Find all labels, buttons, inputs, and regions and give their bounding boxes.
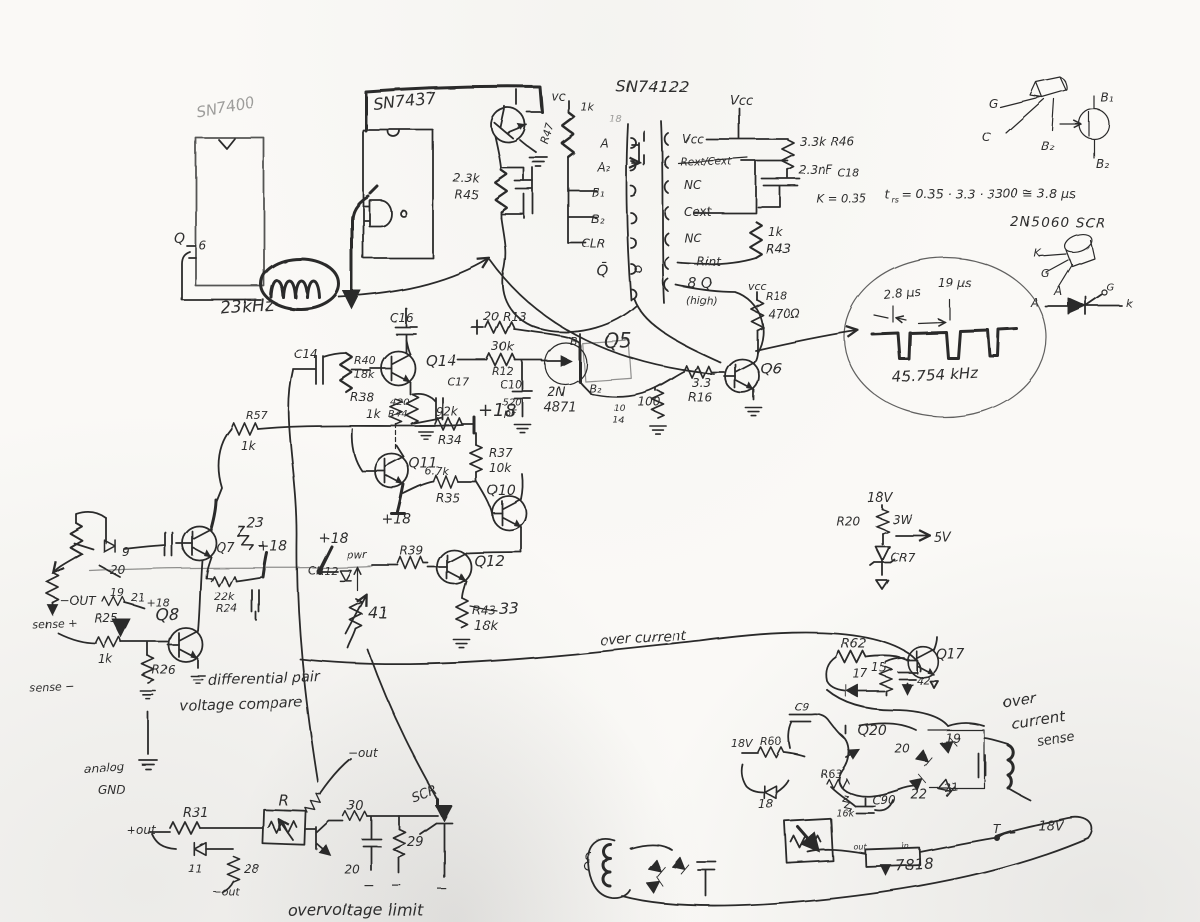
label-3w: 3W xyxy=(892,512,913,526)
label-pin-q-out: 8 Q xyxy=(688,276,712,292)
label-pin-rint: Rint xyxy=(697,255,722,269)
label-r45: R45 xyxy=(455,188,479,202)
label-c42: 42 xyxy=(916,674,930,687)
label-r46: R46 xyxy=(831,135,855,149)
label-18v-a: 18V xyxy=(731,737,754,750)
label-r24: R24 xyxy=(216,602,238,615)
label-p18-q7: +18 xyxy=(258,539,288,555)
label-pin-clr: CLR xyxy=(582,237,605,251)
label-pwr: pwr xyxy=(345,548,368,561)
label-d18: 18 xyxy=(758,797,774,811)
caption-oc-over: over xyxy=(1001,688,1037,711)
label-5v: 5V xyxy=(934,531,952,546)
label-q14: Q14 xyxy=(426,352,457,370)
label-vcc-top: Vcc xyxy=(729,93,752,108)
label-c17: C17 xyxy=(448,376,470,389)
region-5v-tap: 18V R20 3W 5V CR7 xyxy=(836,491,952,589)
label-minus2: − xyxy=(391,878,403,894)
label-d11: 11 xyxy=(188,862,202,875)
label-ujt-part2: 4871 xyxy=(544,401,577,416)
label-r46-val: 3.3k xyxy=(800,135,827,149)
label-p18-q11: +18 xyxy=(382,512,412,528)
label-oneshot-part: SN74122 xyxy=(616,77,689,96)
label-r35-val: 6.7k xyxy=(425,465,449,478)
label-q8: Q8 xyxy=(155,605,179,625)
label-r37: R37 xyxy=(489,446,513,460)
label-p18-cr12: +18 xyxy=(318,530,348,546)
label-sym-b1: B₁ xyxy=(1101,91,1114,105)
label-r40: R40 xyxy=(354,354,376,367)
label-pkg-g: G xyxy=(989,97,998,111)
label-r47-val: 1k xyxy=(580,100,594,113)
caption-oc-sense: sense xyxy=(1036,730,1076,750)
label-d21: 21 xyxy=(131,591,145,604)
label-cr12: CR12 xyxy=(308,564,337,577)
label-c20: 20 xyxy=(344,862,360,876)
label-r15: 15 xyxy=(872,661,887,675)
label-r12-val: 30k xyxy=(492,340,515,354)
label-neg-out-bl: −out xyxy=(212,885,240,898)
region-driver: vc R47 1k 2.3k R45 xyxy=(453,89,636,332)
region-pinout-notes: G C B₂ B₁ B₂ t rs = 0.35 · 3.3 · 3300 ≅ … xyxy=(884,77,1133,315)
label-r20: R20 xyxy=(836,514,860,528)
label-r62: R62 xyxy=(841,637,867,652)
label-bd20: 20 xyxy=(895,742,911,756)
label-r26: R26 xyxy=(152,663,176,677)
label-c14: C14 xyxy=(294,347,318,361)
label-formula: = 0.35 · 3.3 · 3300 ≅ 3.8 μs xyxy=(901,186,1076,201)
label-pos-out: +out xyxy=(126,823,157,837)
label-minus1: − xyxy=(363,878,375,894)
label-r35: R35 xyxy=(436,491,460,505)
label-r43: R43 xyxy=(766,243,792,258)
label-r23: 23 xyxy=(247,516,265,532)
label-pin-nc2: NC xyxy=(684,231,702,245)
label-scrsym-a: A xyxy=(1029,295,1038,309)
label-n14: 14 xyxy=(613,416,625,426)
label-18v: 18V xyxy=(867,491,894,506)
label-pin-rext: Rext/Cext xyxy=(680,156,733,168)
label-scrpkg-a: A xyxy=(1053,284,1062,298)
label-q6: Q6 xyxy=(760,359,781,377)
label-r47: R47 xyxy=(538,122,556,146)
label-r63: R63 xyxy=(820,767,842,780)
label-r45-val: 2.3k xyxy=(453,171,480,185)
label-ujt-part1: 2N xyxy=(548,386,566,401)
label-r16: R16 xyxy=(688,390,712,404)
label-pkg-c: C xyxy=(983,131,992,145)
scanned-schematic-page: SN7400 SN7437 Q 6 23kHz vc R47 1k 2.3k R… xyxy=(0,0,1200,922)
label-xtal-freq: 23kHz xyxy=(220,295,276,319)
label-neg-out: −OUT xyxy=(60,594,97,608)
region-overcurrent-sense: R62 Q17 17 15 42 over current sense C9 1… xyxy=(584,637,1091,906)
label-r31: R31 xyxy=(183,806,209,821)
label-scr: SCR xyxy=(410,784,440,807)
label-r13: 20 R13 xyxy=(484,310,527,324)
label-r60: R60 xyxy=(760,735,782,748)
label-pin-nc1: NC xyxy=(684,178,702,192)
label-pin-q-note: (high) xyxy=(686,295,717,307)
label-gnd: GND xyxy=(98,783,126,797)
label-reg-out: out xyxy=(854,843,868,852)
label-scrsym-g: G xyxy=(1107,283,1115,294)
label-r29: 29 xyxy=(407,835,424,850)
label-formula-t: t xyxy=(884,186,890,201)
label-c18: C18 xyxy=(838,167,860,180)
label-r1k: 1k xyxy=(98,652,114,666)
label-r34: R34 xyxy=(438,433,462,447)
caption-overvoltage: overvoltage limit xyxy=(288,901,424,920)
label-d19: 19 xyxy=(110,586,124,599)
label-scrpkg-k: K xyxy=(1034,247,1042,260)
label-bd19: 19 xyxy=(945,731,960,745)
label-cr7: CR7 xyxy=(890,550,915,564)
region-oscillator: C16 C14 R40 18k Q14 C17 420 R44 R38 1k 2… xyxy=(289,308,856,782)
label-q20: Q20 xyxy=(858,723,887,739)
label-vc: vc xyxy=(551,89,565,103)
schematic-canvas: SN7400 SN7437 Q 6 23kHz vc R47 1k 2.3k R… xyxy=(0,0,1200,922)
label-d9: 9 xyxy=(122,545,130,559)
label-pot41: 41 xyxy=(368,603,388,622)
label-pin-vcc: Vcc xyxy=(682,132,704,146)
label-sym-b2: B₂ xyxy=(1096,157,1109,171)
label-d20: 20 xyxy=(110,563,126,577)
label-r57-val: 1k xyxy=(241,439,257,453)
label-pin-a1: A xyxy=(600,137,609,151)
label-analog: analog xyxy=(83,759,125,776)
label-scrsym-k: k xyxy=(1126,297,1133,310)
label-q7: Q7 xyxy=(216,541,235,556)
caption-oc-current: current xyxy=(1010,707,1068,733)
label-r34-val: 92k xyxy=(436,405,459,419)
label-minus3: − xyxy=(436,881,448,897)
label-bd22: 22 xyxy=(911,788,928,803)
label-pkg-b2: B₂ xyxy=(1041,139,1054,153)
region-waveform-note: 2.8 μs 19 μs 45.754 kHz xyxy=(844,257,1046,417)
label-pin-qbar: Q̄ xyxy=(597,261,609,280)
label-r43b-val18k: 18k xyxy=(474,619,499,634)
label-r30: 30 xyxy=(347,799,364,814)
region-clock-logic: SN7400 SN7437 Q 6 23kHz xyxy=(174,87,542,319)
label-c16: C16 xyxy=(390,311,414,325)
label-pin-b2: B₂ xyxy=(591,212,604,226)
label-scr-part: 2N5060 SCR xyxy=(1011,215,1106,231)
label-r43b: R43 xyxy=(472,603,496,617)
label-pin-6: 6 xyxy=(199,239,207,253)
label-k-factor: K = 0.35 xyxy=(816,191,866,205)
label-pulse-width: 2.8 μs xyxy=(883,284,921,302)
label-c18-val: 2.3nF xyxy=(799,163,834,177)
label-pin-b1: B₁ xyxy=(591,185,604,199)
label-d17: 17 xyxy=(853,667,869,681)
caption-diff-pair: differential pair xyxy=(208,669,322,689)
label-r43b-val33: 33 xyxy=(499,599,519,618)
label-r38-val: 1k xyxy=(366,407,382,421)
label-r57: R57 xyxy=(246,409,268,422)
label-q10: Q10 xyxy=(487,483,516,499)
label-r18: R18 xyxy=(766,290,788,303)
label-q17: Q17 xyxy=(936,647,965,663)
label-r43-val: 1k xyxy=(768,225,784,239)
label-reg-in: in xyxy=(902,842,909,851)
region-overvoltage-limit: +out R31 11 28 −out R −out 30 20 29 SCR … xyxy=(126,746,452,920)
label-r16-val: 3.3 xyxy=(692,376,711,390)
label-sense-pos: sense + xyxy=(32,617,77,632)
label-pin-q: Q xyxy=(174,231,185,247)
label-freq: 45.754 kHz xyxy=(892,363,979,387)
label-r40-val: 18k xyxy=(354,368,375,381)
label-q5: Q5 xyxy=(604,329,632,353)
label-vcc2: vcc xyxy=(748,280,767,293)
label-pin-cext: Cext xyxy=(684,205,713,219)
label-pin-mark: 18 xyxy=(609,114,622,125)
label-c9: C9 xyxy=(795,701,810,714)
label-scrpkg-g: G xyxy=(1041,267,1050,280)
label-ujt-b1: B₁ xyxy=(570,335,582,348)
label-pin-a2: A₂ xyxy=(596,160,610,174)
label-18v-b: 18V xyxy=(1038,819,1065,834)
label-pot-r: R xyxy=(278,791,288,809)
label-r28: 28 xyxy=(244,862,260,876)
label-q12: Q12 xyxy=(474,552,505,570)
label-r39: R39 xyxy=(400,544,424,558)
caption-volt-compare: voltage compare xyxy=(180,695,303,715)
label-formula-sub: rs xyxy=(891,195,898,204)
label-p18-rail: +18 xyxy=(478,400,516,421)
label-r25: R25 xyxy=(94,611,118,625)
label-ic1: SN7400 xyxy=(195,93,256,121)
label-n10: 10 xyxy=(614,404,626,414)
label-period: 19 μs xyxy=(938,276,971,290)
label-r12: R12 xyxy=(492,365,514,378)
label-c90: C90 xyxy=(872,793,896,807)
label-reg-7818: 7818 xyxy=(895,854,934,875)
label-sense-neg: sense − xyxy=(29,680,74,695)
label-c10: C10 xyxy=(500,378,522,391)
label-over-current-wire: over current xyxy=(599,628,687,649)
label-r16k: 16k xyxy=(836,808,854,819)
label-bd21: 21 xyxy=(943,780,959,795)
label-ujt-b2: B₂ xyxy=(589,382,602,395)
label-r100: 100 xyxy=(638,395,661,409)
region-diff-pair: 9 20 19 21 +18 R25 Q8 Q7 23 +18 22k R24 … xyxy=(29,500,321,797)
label-r38: R38 xyxy=(350,390,374,404)
label-r18-val: 470Ω xyxy=(768,307,801,321)
label-neg-out-up: −out xyxy=(348,746,379,760)
label-r37-val: 10k xyxy=(489,461,512,475)
